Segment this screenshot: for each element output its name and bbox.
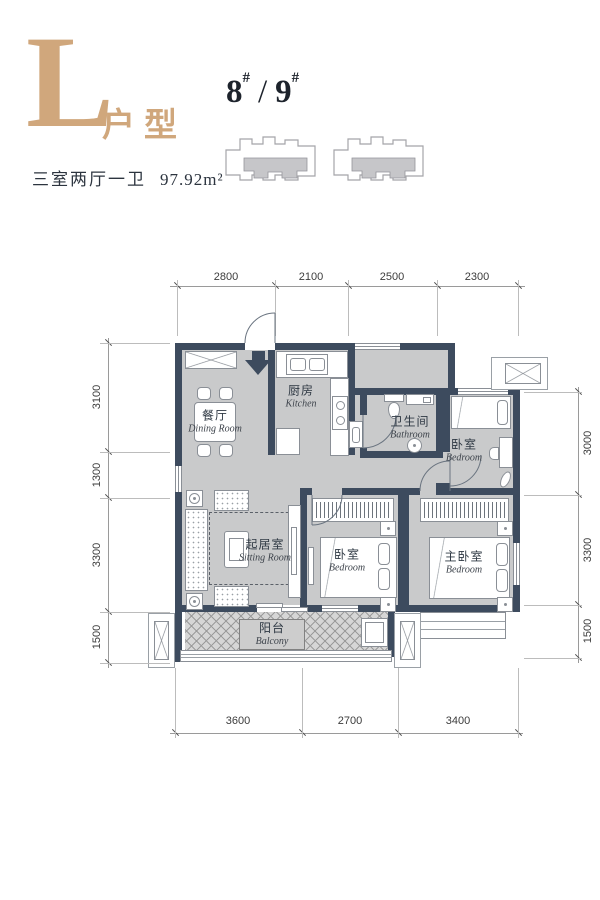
cabinet-icon [185,351,237,369]
bedroom-top-en: Bedroom [446,452,482,465]
nightstand-icon [380,597,396,612]
burner-icon [336,416,345,425]
building-silhouette-icon [222,128,438,190]
dim-left-1: 3100 [91,385,103,409]
bedroom-mid-en: Bedroom [329,562,365,575]
pillow-icon [378,543,390,565]
plant-icon [186,490,203,507]
bathroom-cn: 卫生间 [390,414,430,428]
hash-a: # [243,70,251,86]
dim-ext [437,280,438,336]
window-bedroommid-icon [322,605,358,612]
bedroom-top-cn: 卧室 [446,437,482,451]
dim-ext [348,280,349,336]
dining-cn: 餐厅 [188,408,242,422]
dim-bottom-1: 3600 [226,715,250,727]
label-bedroom-mid: 卧室 Bedroom [329,547,365,574]
dim-ext [518,668,519,738]
balcony-en: Balcony [256,635,289,648]
washer-door-icon [365,622,384,643]
sliding-door-icon [281,607,308,612]
cabinet-door-icon [423,397,431,403]
armchair-icon [214,586,249,607]
dim-right-1: 3000 [582,431,594,455]
sink-basin-icon [309,358,325,371]
bedroom-mid-cn: 卧室 [329,547,365,561]
wall-master-top-a [409,488,420,495]
dim-ext [100,498,170,499]
dim-ext [518,280,519,336]
building-separator: / [258,74,267,110]
armchair-icon [214,490,249,511]
room-count-label: 三室两厅一卫 [32,170,146,189]
window-kitchen-icon [355,343,400,350]
dim-top-1: 2800 [214,271,238,283]
dim-left-2: 1300 [91,463,103,487]
burner-icon [336,401,345,410]
bedroom-master-cn: 主卧室 [444,549,483,563]
stove-icon [332,396,348,430]
dim-ext [275,280,276,336]
wall-bedroomtop-stub [436,483,450,495]
dim-right-2: 3300 [582,538,594,562]
entry-door-arc-icon [245,313,275,343]
label-kitchen: 厨房 Kitchen [285,383,316,410]
dim-ext [524,495,582,496]
building-b: 9 [275,74,292,110]
bay-window-icon [420,612,506,639]
label-dining: 餐厅 Dining Room [188,408,242,435]
dim-ext [177,280,178,336]
balcony-cn: 阳台 [259,621,285,635]
plan-letter: L [26,28,114,136]
pillow-icon [378,568,390,590]
plan-spec: 三室两厅一卫97.92m² [32,165,224,190]
pillow-icon [496,569,508,592]
hangers-icon [424,502,505,518]
washbasin-icon [349,421,363,448]
wall-top-left [175,343,245,350]
plant-pot-icon [189,596,200,607]
pillow-icon [496,543,508,566]
label-sitting: 起居室 Sitting Room [239,537,291,564]
dim-left-4: 1500 [91,625,103,649]
building-a: 8 [226,74,243,110]
label-bedroom-master: 主卧室 Bedroom [444,549,483,576]
bath-cabinet-icon [406,394,434,405]
dimension-line-bottom [170,733,523,734]
plan-type-label: 户型 [102,98,186,146]
dim-ext [100,663,170,664]
dim-ext [302,668,303,738]
area-label: 97.92m² [160,170,224,189]
wall-bedroom-divider [398,488,409,612]
kitchen-sink-icon [286,354,328,375]
dim-left-3: 3300 [91,543,103,567]
entry-arrow-icon [245,360,271,375]
dim-top-2: 2100 [299,271,323,283]
label-bedroom-top: 卧室 Bedroom [446,437,482,464]
dim-right-3: 1500 [582,619,594,643]
label-bathroom: 卫生间 Bathroom [390,414,430,441]
chair-icon [219,387,233,400]
window-master-icon [513,543,520,585]
wall-bedroommid-left [300,488,307,612]
bed-fold-icon [452,397,468,428]
sitting-cn: 起居室 [239,537,291,551]
chair-icon [219,444,233,457]
balcony-glazing-icon [180,650,392,662]
label-balcony: 阳台 Balcony [239,619,305,650]
window-left-icon [175,466,182,492]
dim-ext [100,452,170,453]
ac-xbox-topright-icon [505,363,541,384]
wardrobe-icon [312,498,394,522]
wall-bathroom-bottom [360,451,443,458]
dim-ext [175,668,176,738]
nightstand-icon [380,521,396,536]
sink-basin-icon [290,358,306,371]
dim-top-3: 2500 [380,271,404,283]
wall-master-top-b [450,488,513,495]
sofa-icon [185,509,208,591]
washing-machine-icon [361,618,388,647]
dim-ext [100,612,170,613]
desk-chair-icon [489,447,499,460]
nightstand-icon [497,597,513,612]
dimension-line-right [578,387,579,663]
toilet-tank-icon [384,394,404,402]
fridge-icon [276,428,300,455]
chair-icon [197,444,211,457]
nightstand-icon [497,521,513,536]
sitting-en: Sitting Room [239,552,291,565]
dim-ext [398,668,399,738]
dim-ext [524,658,582,659]
floorplan-page: L 户型 三室两厅一卫97.92m² 8#/9# [0,0,600,900]
dim-bottom-2: 2700 [338,715,362,727]
tv-icon [291,527,297,575]
wall-tv-icon [308,547,314,585]
dim-ext [524,392,582,393]
dining-en: Dining Room [188,423,242,436]
ac-xbox-left-icon [154,621,169,660]
bathroom-en: Bathroom [390,429,430,442]
dim-ext [524,605,582,606]
chair-icon [197,387,211,400]
dim-bottom-3: 3400 [446,715,470,727]
bedroom-master-en: Bedroom [444,564,483,577]
plant-icon [186,593,203,610]
kitchen-cn: 厨房 [285,383,316,397]
basin-bowl-icon [352,427,360,443]
building-numbers: 8#/9# [226,70,299,111]
hangers-icon [316,502,390,518]
dim-ext [100,343,170,344]
wardrobe-icon [420,498,509,522]
hash-b: # [292,70,300,86]
ac-xbox-right-icon [400,621,415,660]
wall-bathroom-left [360,392,367,415]
kitchen-en: Kitchen [285,398,316,411]
dimension-line-left [108,338,109,668]
pillow-icon [497,400,508,425]
sliding-door-icon [256,603,283,608]
desk-icon [499,437,513,468]
plant-pot-icon [189,493,200,504]
dim-top-4: 2300 [465,271,489,283]
